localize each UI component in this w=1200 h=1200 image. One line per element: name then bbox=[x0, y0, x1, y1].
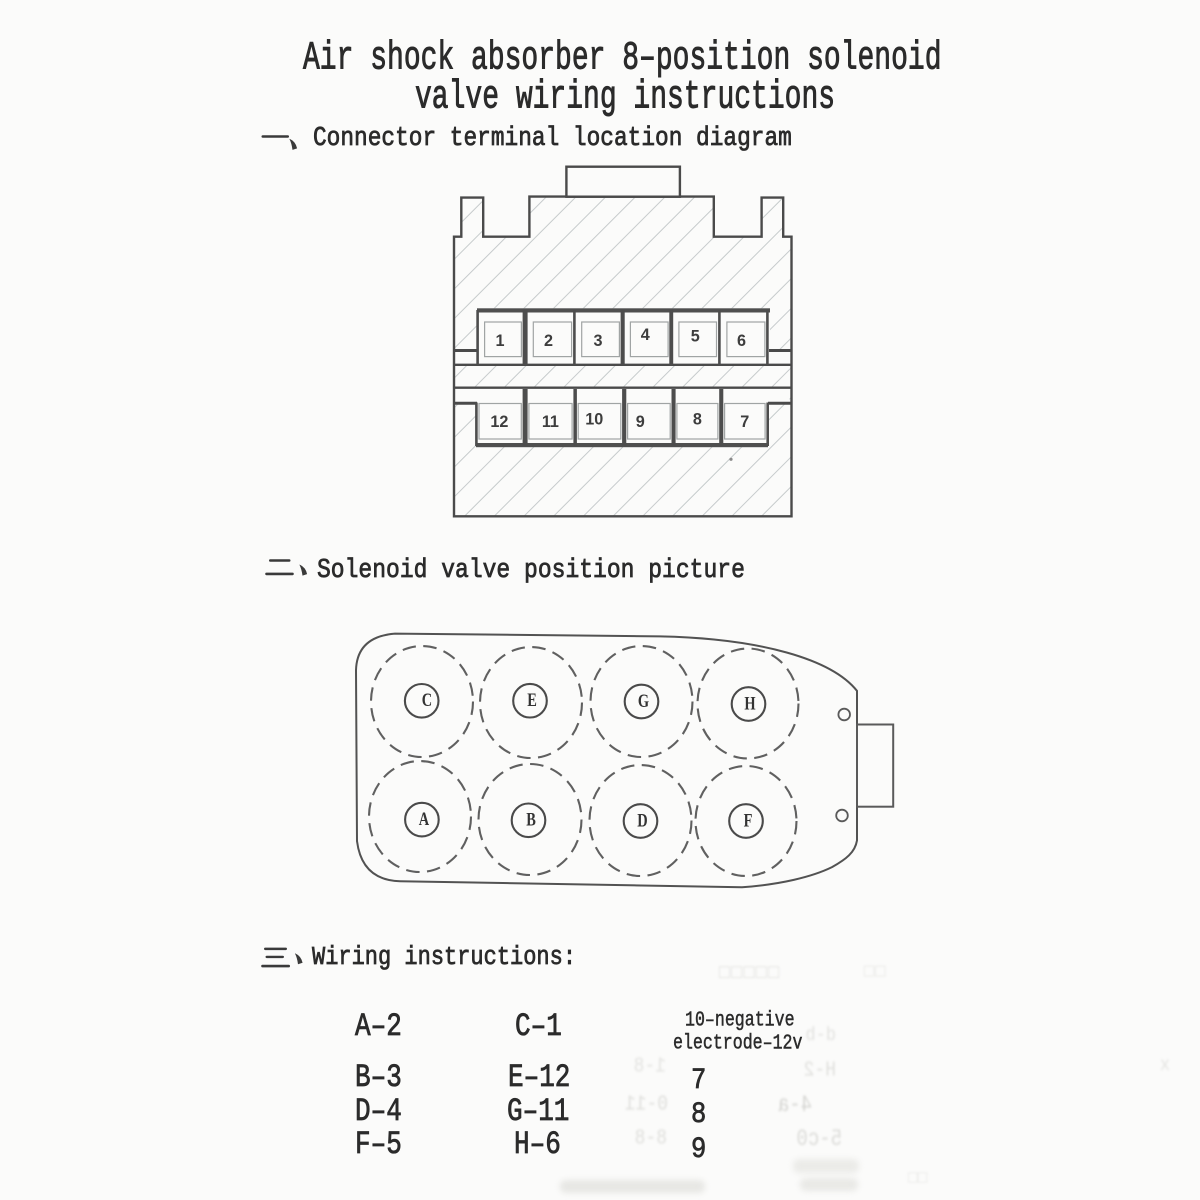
svg-text:9: 9 bbox=[636, 413, 645, 431]
svg-text:10: 10 bbox=[585, 411, 603, 429]
svg-text:2: 2 bbox=[544, 332, 553, 350]
svg-text:5: 5 bbox=[691, 328, 700, 346]
svg-text:B: B bbox=[526, 808, 536, 829]
svg-text:C: C bbox=[422, 689, 432, 710]
svg-text:E: E bbox=[527, 689, 537, 710]
svg-text:8: 8 bbox=[693, 411, 702, 429]
svg-text:A: A bbox=[419, 808, 430, 829]
svg-text:7: 7 bbox=[740, 413, 749, 431]
svg-text:12: 12 bbox=[490, 413, 508, 431]
svg-text:6: 6 bbox=[737, 332, 746, 350]
svg-text:H: H bbox=[744, 692, 755, 713]
svg-text:G: G bbox=[638, 690, 649, 711]
svg-text:11: 11 bbox=[542, 413, 559, 431]
svg-text:3: 3 bbox=[593, 332, 602, 350]
svg-text:4: 4 bbox=[641, 326, 650, 344]
svg-text:F: F bbox=[744, 809, 753, 830]
svg-text:1: 1 bbox=[495, 332, 504, 350]
svg-text:D: D bbox=[637, 809, 647, 830]
